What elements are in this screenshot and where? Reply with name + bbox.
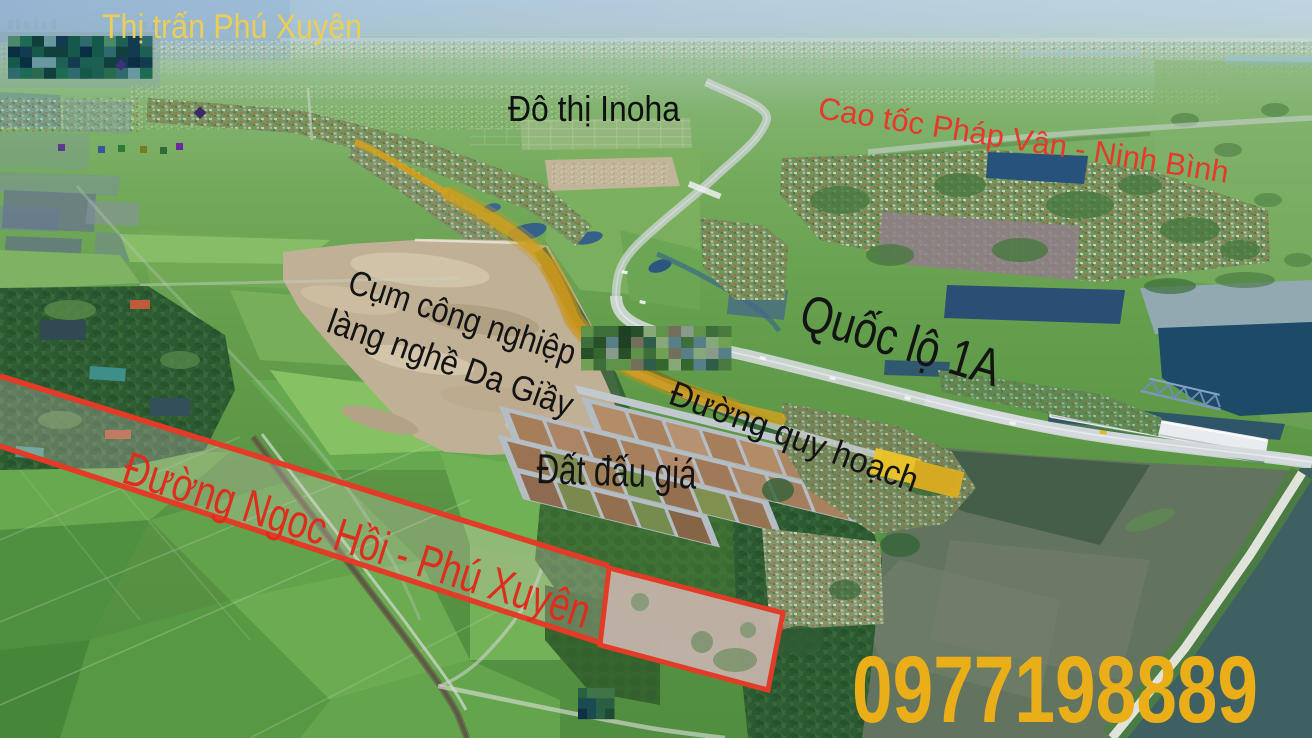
svg-text:0977198889: 0977198889 [852,637,1258,738]
svg-text:Thị trấn Phú Xuyên: Thị trấn Phú Xuyên [102,8,362,46]
svg-text:Đất đấu giá: Đất đấu giá [536,445,698,498]
svg-text:Đô thị Inoha: Đô thị Inoha [508,88,681,129]
